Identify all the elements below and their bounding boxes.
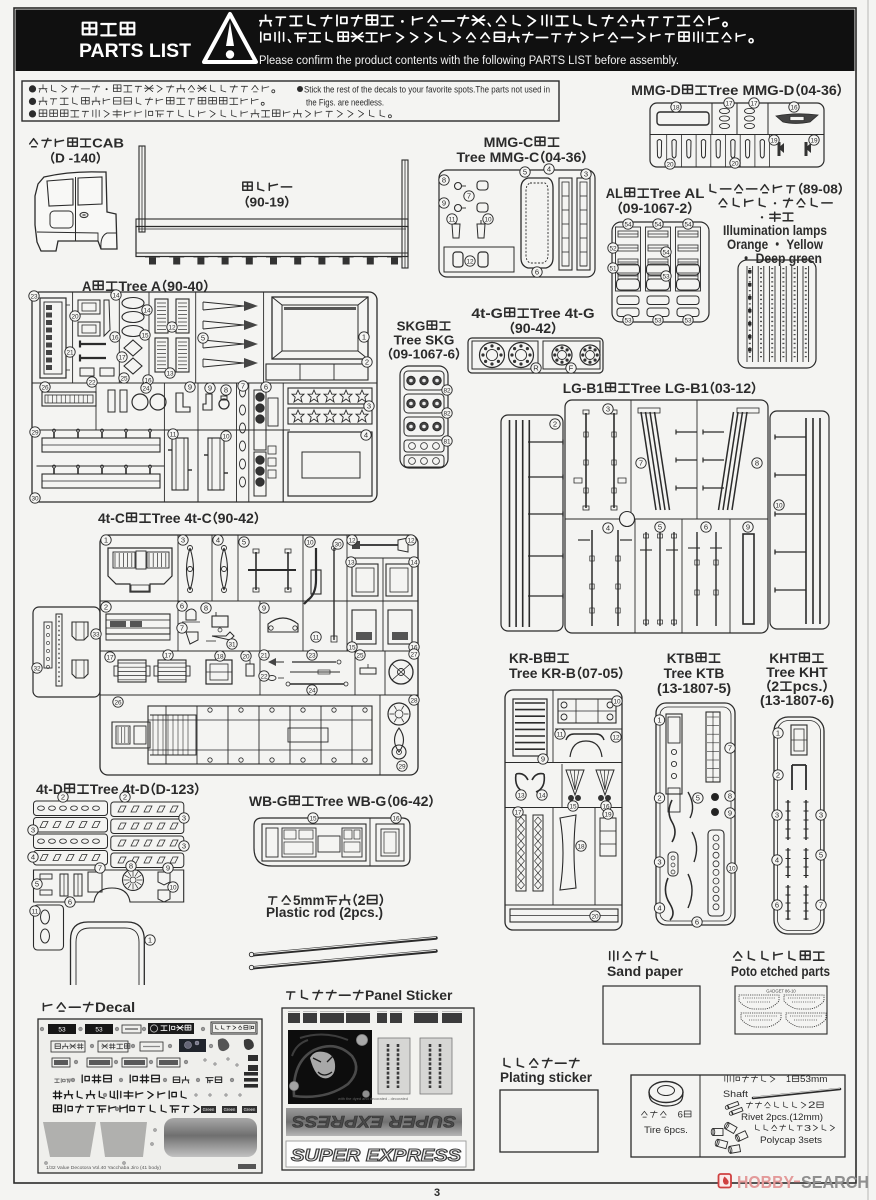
svg-text:D-123: D-123 [156, 782, 195, 797]
svg-text:Green: Green [224, 1107, 236, 1112]
svg-text:9: 9 [746, 523, 750, 532]
svg-text:2: 2 [657, 794, 661, 803]
svg-text:8: 8 [129, 862, 133, 871]
svg-text:26: 26 [41, 384, 49, 391]
svg-text:53: 53 [654, 317, 662, 324]
svg-text:3: 3 [584, 170, 588, 179]
svg-text:90-42: 90-42 [515, 321, 551, 336]
svg-text:54: 54 [654, 221, 662, 228]
svg-text:07-05: 07-05 [582, 666, 619, 681]
svg-text:5: 5 [523, 168, 527, 177]
svg-text:7: 7 [728, 744, 732, 753]
svg-text:10: 10 [484, 216, 492, 223]
svg-text:Tree AL: Tree AL [650, 186, 704, 201]
svg-text:23: 23 [30, 293, 38, 300]
svg-text:4: 4 [216, 536, 220, 545]
svg-text:17: 17 [514, 809, 522, 816]
svg-text:・ Deep green: ・ Deep green [740, 251, 822, 266]
svg-text:3: 3 [182, 814, 186, 823]
svg-text:90-42: 90-42 [218, 511, 254, 526]
svg-text:1: 1 [104, 536, 108, 545]
svg-text:11: 11 [32, 908, 39, 915]
svg-text:8: 8 [728, 792, 732, 801]
svg-text:30: 30 [31, 495, 39, 502]
svg-text:Polycap 3sets: Polycap 3sets [760, 1135, 823, 1145]
svg-text:3: 3 [31, 826, 35, 835]
svg-text:8: 8 [224, 386, 228, 395]
svg-text:SEARCH: SEARCH [801, 1172, 869, 1192]
svg-text:11: 11 [313, 634, 320, 641]
svg-text:MMG-C: MMG-C [484, 135, 534, 150]
svg-text:16: 16 [392, 815, 400, 822]
svg-text:8: 8 [442, 176, 446, 185]
svg-text:1/32 Value Decotora Vol.40 Ya: 1/32 Value Decotora Vol.40 Yacchaba Jiro… [46, 1165, 162, 1170]
svg-text:Shaft: Shaft [723, 1089, 748, 1100]
svg-text:06-42: 06-42 [392, 794, 428, 809]
svg-text:4: 4 [31, 853, 35, 862]
svg-text:1: 1 [657, 716, 661, 725]
svg-text:10: 10 [728, 865, 736, 872]
svg-text:Tree LG-B1: Tree LG-B1 [631, 381, 710, 396]
svg-text:3: 3 [819, 811, 823, 820]
svg-text:CAB: CAB [92, 135, 124, 150]
svg-text:2: 2 [365, 358, 369, 367]
svg-text:5: 5 [35, 880, 39, 889]
svg-text:7: 7 [180, 624, 184, 633]
svg-text:14: 14 [112, 292, 120, 299]
svg-text:29: 29 [31, 429, 39, 436]
svg-text:9: 9 [262, 604, 266, 613]
svg-text:20: 20 [666, 161, 674, 168]
svg-text:6: 6 [695, 918, 699, 927]
svg-text:1: 1 [362, 333, 366, 342]
svg-text:54: 54 [624, 221, 632, 228]
svg-text:D -140: D -140 [55, 150, 96, 165]
svg-text:5: 5 [201, 334, 205, 343]
svg-text:MMG-D: MMG-D [631, 83, 681, 98]
svg-text:3: 3 [606, 405, 610, 414]
svg-text:LG-B1: LG-B1 [563, 381, 604, 396]
svg-text:Tree KTB: Tree KTB [664, 666, 725, 681]
svg-text:7: 7 [241, 382, 245, 391]
svg-text:6: 6 [704, 523, 708, 532]
svg-text:Please confirm the product con: Please confirm the product contents with… [259, 53, 679, 67]
svg-text:4: 4 [364, 431, 368, 440]
svg-text:Plastic rod (2pcs.): Plastic rod (2pcs.) [266, 905, 383, 920]
svg-text:3: 3 [181, 536, 185, 545]
svg-text:1: 1 [786, 1074, 791, 1084]
svg-text:Plating sticker: Plating sticker [500, 1070, 593, 1085]
svg-text:10: 10 [775, 502, 783, 509]
svg-text:F: F [569, 364, 574, 373]
svg-text:WB-G: WB-G [249, 794, 288, 809]
svg-text:89-08: 89-08 [803, 181, 838, 196]
svg-text:12: 12 [612, 734, 620, 741]
svg-text:90-19: 90-19 [250, 194, 285, 209]
svg-text:17: 17 [750, 100, 758, 107]
svg-text:12: 12 [168, 324, 176, 331]
svg-text:53mm: 53mm [800, 1074, 828, 1084]
svg-text:09-1067-6: 09-1067-6 [393, 346, 455, 361]
svg-text:8: 8 [204, 604, 208, 613]
svg-text:31: 31 [228, 641, 236, 648]
svg-text:3: 3 [367, 402, 371, 411]
svg-text:9: 9 [728, 809, 732, 818]
svg-text:KHT: KHT [769, 651, 798, 666]
svg-text:25: 25 [120, 375, 128, 382]
svg-text:6: 6 [264, 383, 268, 392]
svg-text:Stick the rest of the decals t: Stick the rest of the decals to your fav… [304, 85, 550, 95]
svg-text:16: 16 [790, 104, 798, 111]
svg-text:4: 4 [775, 856, 779, 865]
svg-text:8: 8 [755, 459, 759, 468]
svg-text:82: 82 [443, 387, 451, 394]
svg-text:33: 33 [92, 631, 100, 638]
svg-text:5: 5 [696, 794, 700, 803]
svg-text:23: 23 [308, 652, 316, 659]
svg-text:53: 53 [624, 317, 632, 324]
svg-text:52: 52 [609, 245, 617, 252]
svg-text:5: 5 [819, 851, 823, 860]
svg-text:10: 10 [306, 539, 314, 546]
svg-text:20: 20 [591, 913, 599, 920]
svg-text:25: 25 [356, 652, 364, 659]
svg-text:17: 17 [106, 654, 114, 661]
svg-text:12: 12 [466, 258, 474, 265]
svg-text:3: 3 [434, 1187, 440, 1199]
svg-text:11: 11 [449, 216, 456, 223]
svg-text:30: 30 [334, 541, 342, 548]
svg-text:3: 3 [804, 1123, 811, 1133]
svg-text:2: 2 [553, 420, 557, 429]
svg-text:20: 20 [242, 653, 250, 660]
svg-text:5: 5 [242, 538, 246, 547]
svg-text:18: 18 [216, 653, 224, 660]
svg-text:7: 7 [819, 901, 823, 910]
svg-text:13: 13 [517, 792, 525, 799]
svg-text:9: 9 [188, 383, 192, 392]
svg-text:Tree 4t-D: Tree 4t-D [90, 782, 150, 797]
svg-text:HOBBY: HOBBY [737, 1172, 794, 1192]
svg-text:Tree KR-B: Tree KR-B [509, 666, 576, 681]
svg-text:SUPER EXPRESS: SUPER EXPRESS [291, 1112, 456, 1131]
svg-text:Sand paper: Sand paper [607, 964, 684, 979]
svg-text:29: 29 [398, 763, 406, 770]
svg-text:10: 10 [613, 698, 621, 705]
svg-text:22: 22 [88, 379, 96, 386]
svg-text:Illumination lamps: Illumination lamps [723, 223, 827, 238]
svg-text:03-12: 03-12 [715, 381, 751, 396]
svg-text:19: 19 [770, 137, 778, 144]
svg-text:7: 7 [467, 192, 471, 201]
svg-text:Tree 4t-G: Tree 4t-G [530, 306, 595, 321]
svg-text:5: 5 [658, 523, 662, 532]
svg-text:28: 28 [410, 697, 418, 704]
svg-text:Tree SKG: Tree SKG [394, 332, 455, 347]
svg-text:11: 11 [170, 431, 177, 438]
svg-text:26: 26 [114, 699, 122, 706]
svg-text:18: 18 [577, 843, 585, 850]
svg-text:20: 20 [731, 160, 739, 167]
svg-text:17: 17 [118, 354, 126, 361]
svg-text:82: 82 [443, 410, 451, 417]
svg-text:81: 81 [443, 438, 451, 445]
svg-text:9: 9 [208, 384, 212, 393]
svg-text:6: 6 [68, 898, 72, 907]
svg-text:R: R [533, 364, 539, 373]
svg-text:53: 53 [684, 317, 692, 324]
svg-text:53: 53 [95, 1027, 103, 1034]
svg-text:Decal: Decal [95, 1000, 135, 1015]
svg-text:17: 17 [725, 100, 733, 107]
svg-text:Tree WB-G: Tree WB-G [315, 794, 387, 809]
svg-text:9: 9 [166, 864, 170, 873]
svg-text:51: 51 [609, 265, 617, 272]
svg-text:09-1067-2: 09-1067-2 [623, 201, 688, 216]
svg-text:4t-C: 4t-C [98, 511, 125, 526]
svg-text:6: 6 [180, 602, 184, 611]
svg-text:Green: Green [244, 1107, 256, 1112]
svg-text:12: 12 [407, 537, 415, 544]
svg-text:AL: AL [606, 186, 623, 201]
svg-text:10: 10 [169, 884, 177, 891]
svg-text:53: 53 [662, 273, 670, 280]
svg-text:15: 15 [569, 803, 577, 810]
svg-text:54: 54 [684, 221, 692, 228]
svg-text:the Figs. are needless.: the Figs. are needless. [306, 98, 384, 108]
svg-text:11: 11 [557, 731, 564, 738]
svg-text:24: 24 [308, 687, 316, 694]
svg-text:10: 10 [222, 433, 230, 440]
svg-text:Poto etched parts: Poto etched parts [731, 964, 830, 979]
svg-text:19: 19 [810, 137, 818, 144]
svg-text:13: 13 [347, 559, 355, 566]
svg-text:4: 4 [606, 524, 610, 533]
svg-text:pcs.: pcs. [793, 679, 823, 694]
svg-text:15: 15 [348, 644, 356, 651]
svg-text:SUPER EXPRESS: SUPER EXPRESS [291, 1145, 461, 1165]
svg-text:13: 13 [166, 370, 174, 377]
svg-text:19: 19 [604, 811, 612, 818]
svg-text:(13-1807-6): (13-1807-6) [760, 693, 834, 708]
svg-text:(13-1807-5): (13-1807-5) [657, 681, 731, 696]
svg-text:2: 2 [104, 603, 108, 612]
svg-text:04-36: 04-36 [801, 83, 838, 98]
svg-text:Green: Green [203, 1107, 215, 1112]
svg-text:KR-B: KR-B [509, 651, 543, 666]
svg-text:54: 54 [662, 249, 670, 256]
svg-text:04-36: 04-36 [545, 150, 582, 165]
svg-text:9: 9 [541, 755, 545, 764]
svg-text:14: 14 [143, 307, 151, 314]
svg-text:2: 2 [771, 679, 779, 694]
svg-text:9: 9 [442, 199, 446, 208]
svg-text:16: 16 [111, 334, 119, 341]
svg-text:24: 24 [142, 385, 150, 392]
svg-text:Orange ・ Yellow: Orange ・ Yellow [727, 237, 823, 252]
svg-text:14: 14 [410, 559, 418, 566]
svg-text:2: 2 [123, 793, 127, 802]
svg-text:15: 15 [309, 815, 317, 822]
svg-text:6: 6 [775, 901, 779, 910]
svg-text:3: 3 [657, 858, 661, 867]
svg-text:KTB: KTB [667, 651, 695, 666]
svg-text:Panel Sticker: Panel Sticker [365, 988, 453, 1003]
svg-text:53: 53 [58, 1027, 66, 1034]
svg-text:4: 4 [657, 904, 661, 913]
svg-text:22: 22 [260, 673, 268, 680]
svg-text:32: 32 [33, 665, 41, 672]
svg-text:GADGET 86-10: GADGET 86-10 [766, 989, 796, 994]
svg-text:2: 2 [776, 771, 780, 780]
svg-text:2: 2 [808, 1100, 816, 1110]
svg-text:3: 3 [775, 811, 779, 820]
svg-text:20: 20 [71, 313, 79, 320]
svg-text:7: 7 [98, 864, 102, 873]
svg-text:18: 18 [672, 104, 680, 111]
svg-text:3: 3 [182, 842, 186, 851]
svg-text:Rivet 2pcs.(12mm): Rivet 2pcs.(12mm) [741, 1112, 823, 1122]
svg-text:21: 21 [260, 652, 268, 659]
svg-text:27: 27 [410, 651, 418, 658]
svg-text:7: 7 [639, 459, 643, 468]
svg-text:Tree KHT: Tree KHT [766, 665, 828, 680]
svg-text:1: 1 [148, 936, 152, 945]
svg-text:4: 4 [547, 165, 551, 174]
svg-text:17: 17 [164, 652, 172, 659]
svg-text:12: 12 [348, 537, 356, 544]
svg-text:Tree MMG-D: Tree MMG-D [708, 83, 795, 98]
svg-text:15: 15 [141, 332, 149, 339]
svg-text:Tire 6pcs.: Tire 6pcs. [644, 1125, 688, 1136]
svg-text:PARTS LIST: PARTS LIST [79, 40, 191, 62]
svg-text:6: 6 [678, 1110, 683, 1121]
svg-text:14: 14 [538, 792, 546, 799]
svg-text:2: 2 [61, 793, 65, 802]
svg-text:Tree 4t-C: Tree 4t-C [152, 511, 212, 526]
svg-text:4t-G: 4t-G [471, 306, 503, 321]
svg-text:1: 1 [776, 729, 780, 738]
svg-text:SKG: SKG [397, 318, 426, 333]
svg-text:with the dyed and decorated -: with the dyed and decorated - decorated [338, 1097, 408, 1101]
svg-text:Tree MMG-C: Tree MMG-C [457, 150, 540, 165]
svg-text:6: 6 [535, 268, 539, 277]
svg-text:21: 21 [66, 349, 74, 356]
